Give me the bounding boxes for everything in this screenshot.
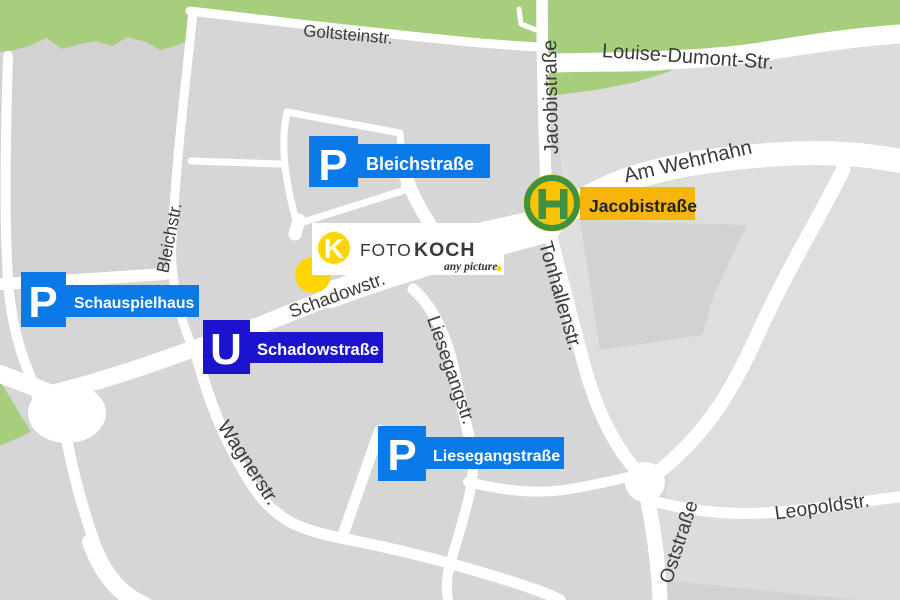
svg-text:U: U <box>210 325 242 374</box>
svg-text:KOCH: KOCH <box>414 239 475 261</box>
svg-text:P: P <box>387 431 416 480</box>
svg-text:Liesegangstraße: Liesegangstraße <box>433 448 560 465</box>
svg-text:Schauspielhaus: Schauspielhaus <box>74 295 194 312</box>
svg-text:any picture: any picture <box>444 261 497 273</box>
svg-text:P: P <box>28 278 57 327</box>
svg-text:Jacobistraße: Jacobistraße <box>539 40 563 155</box>
svg-text:Schadowstraße: Schadowstraße <box>257 341 379 359</box>
svg-text:FOTO: FOTO <box>360 240 412 260</box>
svg-text:K: K <box>324 233 344 264</box>
svg-text:Jacobistraße: Jacobistraße <box>589 196 697 216</box>
svg-text:Bleichstraße: Bleichstraße <box>366 154 474 174</box>
svg-text:P: P <box>318 141 347 190</box>
